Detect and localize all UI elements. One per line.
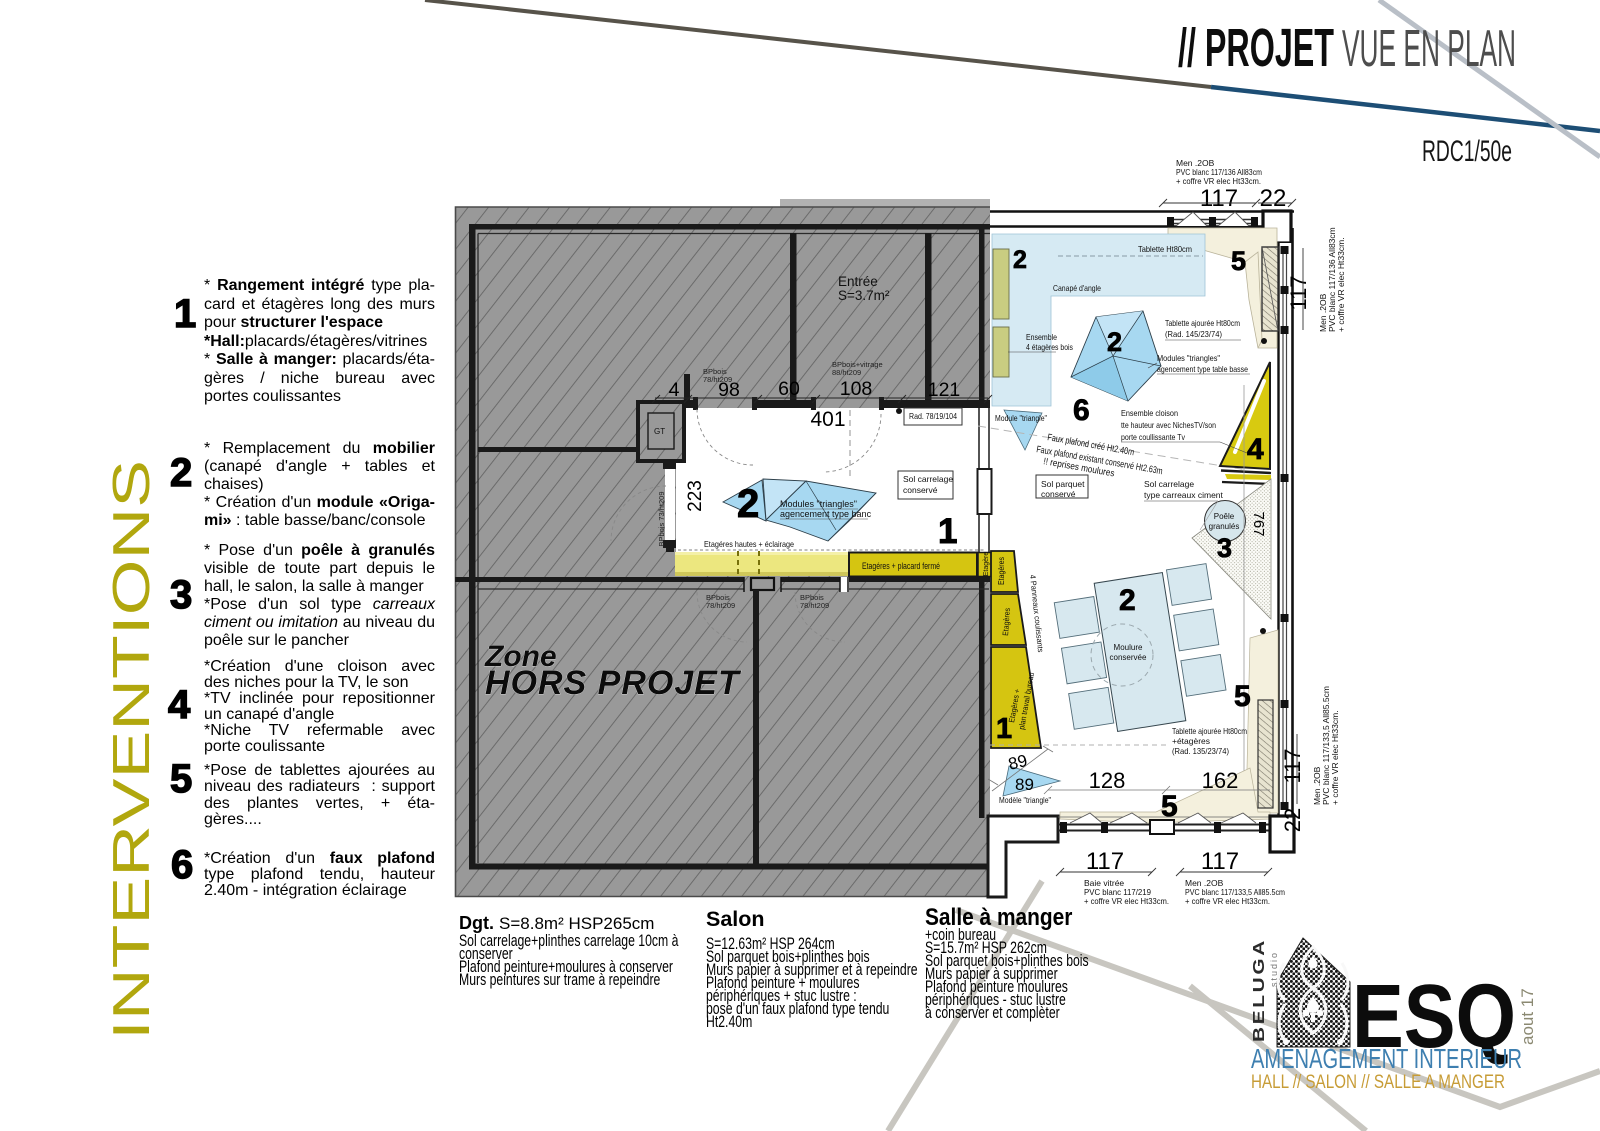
svg-text:5: 5 bbox=[1231, 246, 1246, 276]
svg-text:6: 6 bbox=[1073, 394, 1090, 427]
svg-text:401: 401 bbox=[810, 408, 845, 431]
svg-text:223: 223 bbox=[685, 480, 706, 512]
svg-text:78/ht209: 78/ht209 bbox=[706, 601, 735, 610]
svg-text:128: 128 bbox=[1089, 768, 1126, 793]
svg-text:Etagère: Etagère bbox=[983, 552, 990, 577]
svg-text:type carreaux ciment: type carreaux ciment bbox=[1144, 490, 1224, 500]
svg-text:Poêle: Poêle bbox=[1214, 512, 1235, 521]
svg-text:4: 4 bbox=[1247, 433, 1264, 466]
svg-text:117: 117 bbox=[1286, 275, 1311, 310]
svg-text:5: 5 bbox=[1234, 680, 1251, 713]
svg-text:Rad. 78/19/104: Rad. 78/19/104 bbox=[909, 411, 957, 421]
svg-text:GT: GT bbox=[654, 427, 665, 436]
svg-text:2: 2 bbox=[1107, 327, 1122, 357]
svg-text:(Rad. 135/23/74): (Rad. 135/23/74) bbox=[1172, 746, 1229, 756]
svg-text:granulés: granulés bbox=[1209, 522, 1240, 531]
svg-text:2: 2 bbox=[1119, 584, 1136, 617]
svg-text:117: 117 bbox=[1201, 848, 1239, 875]
svg-text:5: 5 bbox=[1161, 790, 1178, 823]
svg-text:Modules "triangles": Modules "triangles" bbox=[780, 499, 857, 509]
svg-text:1: 1 bbox=[996, 713, 1012, 745]
svg-text:Module "triangle": Module "triangle" bbox=[995, 414, 1047, 423]
svg-text:22: 22 bbox=[1260, 185, 1287, 212]
svg-text:Moulure: Moulure bbox=[1114, 643, 1143, 652]
svg-text:HORS PROJET: HORS PROJET bbox=[485, 664, 742, 702]
svg-text:Etagéres hautes + éclairage: Etagéres hautes + éclairage bbox=[704, 539, 794, 549]
svg-text:(Rad. 145/23/74): (Rad. 145/23/74) bbox=[1165, 329, 1222, 339]
svg-text:Canapé d'angle: Canapé d'angle bbox=[1053, 283, 1101, 293]
svg-text:1: 1 bbox=[938, 512, 957, 551]
svg-text:Tablette Ht80cm: Tablette Ht80cm bbox=[1138, 244, 1192, 254]
svg-text:conservé: conservé bbox=[1041, 489, 1076, 499]
svg-text:Modules "triangles": Modules "triangles" bbox=[1157, 353, 1220, 363]
svg-text:porte coullissante Tv: porte coullissante Tv bbox=[1121, 432, 1186, 442]
svg-text:+ coffre VR elec Ht33cm.: + coffre VR elec Ht33cm. bbox=[1084, 896, 1169, 906]
svg-text:tte hauteur avec NichesTV/son: tte hauteur avec NichesTV/son bbox=[1121, 420, 1216, 430]
svg-text:// PROJET: // PROJET bbox=[1178, 18, 1334, 78]
svg-text:2: 2 bbox=[1013, 246, 1027, 274]
svg-text:22: 22 bbox=[1280, 808, 1305, 832]
svg-text:88/ht209: 88/ht209 bbox=[832, 368, 861, 377]
svg-text:Modèle "triangle": Modèle "triangle" bbox=[999, 796, 1051, 805]
svg-text:117: 117 bbox=[1086, 848, 1124, 875]
svg-text:RDC1/50e: RDC1/50e bbox=[1422, 135, 1512, 168]
svg-text:Sol carrelage: Sol carrelage bbox=[1144, 479, 1194, 489]
svg-text:Tablette ajourée Ht80cm: Tablette ajourée Ht80cm bbox=[1172, 726, 1247, 736]
svg-text:agencement type banc: agencement type banc bbox=[780, 509, 872, 519]
svg-text:117: 117 bbox=[1280, 748, 1305, 783]
svg-text:+étagères: +étagères bbox=[1172, 736, 1210, 746]
svg-text:Sol carrelage: Sol carrelage bbox=[903, 474, 953, 484]
svg-text:Etagéres + placard fermé: Etagéres + placard fermé bbox=[862, 561, 940, 571]
svg-text:conservée: conservée bbox=[1110, 653, 1147, 662]
svg-text:S=3.7m²: S=3.7m² bbox=[838, 288, 890, 303]
svg-text:+ coffre VR elec Ht33cm.: + coffre VR elec Ht33cm. bbox=[1330, 710, 1340, 805]
svg-text:agencement type table basse: agencement type table basse bbox=[1157, 364, 1248, 374]
svg-text:117: 117 bbox=[1200, 185, 1238, 212]
svg-text:Sol parquet: Sol parquet bbox=[1041, 479, 1085, 489]
svg-text:108: 108 bbox=[840, 378, 873, 400]
svg-text:HALL // SALON // SALLE A MANGE: HALL // SALON // SALLE A MANGER bbox=[1251, 1072, 1505, 1093]
svg-text:Ensemble: Ensemble bbox=[1026, 332, 1057, 342]
svg-text:3: 3 bbox=[1217, 533, 1232, 563]
svg-text:89: 89 bbox=[1006, 751, 1029, 774]
svg-text:4 étagères bois: 4 étagères bois bbox=[1026, 342, 1073, 352]
svg-text:78/ht209: 78/ht209 bbox=[703, 375, 732, 384]
svg-text:Ensemble cloison: Ensemble cloison bbox=[1121, 408, 1178, 418]
svg-text:Etagères: Etagères bbox=[997, 557, 1006, 585]
svg-text:+ coffre VR elec Ht33cm.: + coffre VR elec Ht33cm. bbox=[1185, 896, 1270, 906]
svg-text:aout 17: aout 17 bbox=[1518, 988, 1537, 1045]
svg-text:AMENAGEMENT INTERIEUR: AMENAGEMENT INTERIEUR bbox=[1251, 1043, 1522, 1074]
svg-text:162: 162 bbox=[1202, 768, 1239, 793]
svg-text:767: 767 bbox=[1250, 511, 1267, 536]
svg-text:4 Panneaux coulissants: 4 Panneaux coulissants bbox=[1028, 574, 1045, 653]
svg-text:VUE EN PLAN: VUE EN PLAN bbox=[1342, 20, 1516, 78]
svg-text:conservé: conservé bbox=[903, 485, 938, 495]
svg-text:BELUGA: BELUGA bbox=[1251, 938, 1268, 1042]
svg-text:2: 2 bbox=[737, 482, 759, 526]
svg-text:BPbois 73/ht209: BPbois 73/ht209 bbox=[657, 491, 666, 546]
svg-text:89: 89 bbox=[1015, 775, 1034, 794]
svg-text:78/ht209: 78/ht209 bbox=[800, 601, 829, 610]
svg-text:Tablette ajourée Ht80cm: Tablette ajourée Ht80cm bbox=[1165, 318, 1240, 328]
svg-text:Entrée: Entrée bbox=[838, 274, 878, 289]
svg-text:INTERVENTIONS: INTERVENTIONS bbox=[103, 460, 161, 1040]
svg-text:60: 60 bbox=[778, 378, 800, 400]
svg-text:+ coffre VR elec Ht33cm.: + coffre VR elec Ht33cm. bbox=[1336, 237, 1346, 332]
